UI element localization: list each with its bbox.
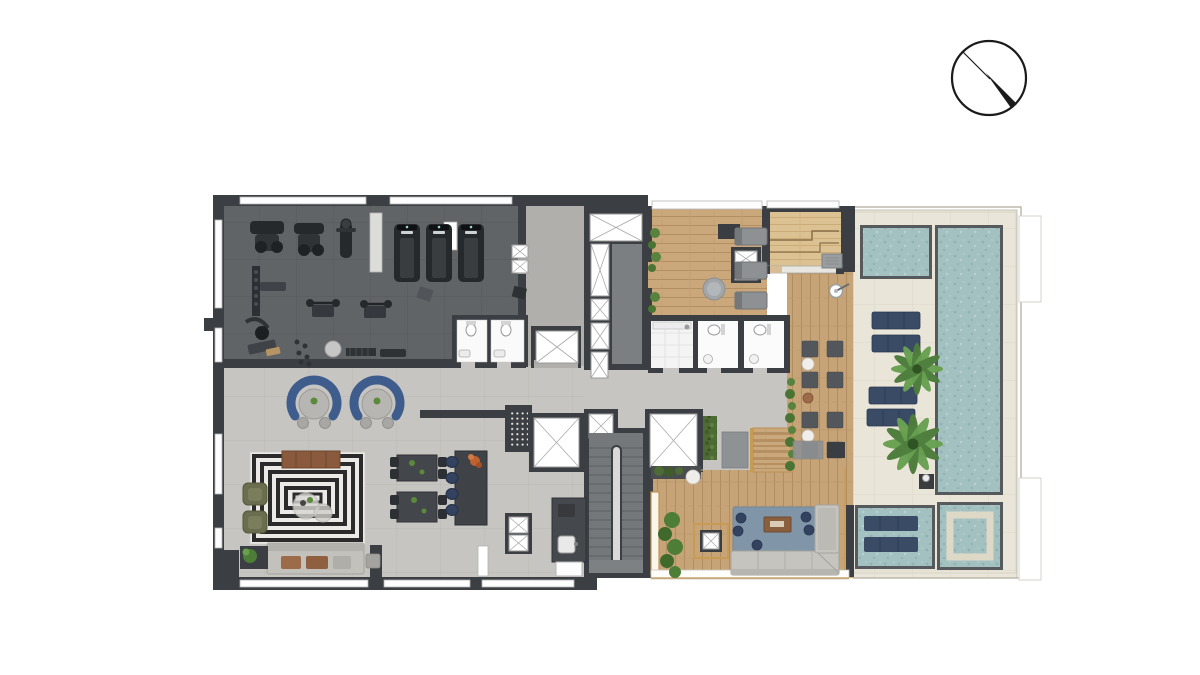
shaft-gray xyxy=(612,244,642,364)
deck-parapet-north xyxy=(652,201,762,209)
treadmill-2-headrest xyxy=(433,231,445,234)
gray-mat xyxy=(722,432,748,468)
round-table-brown xyxy=(803,393,813,403)
rack-knob-3 xyxy=(254,286,258,290)
wall-corridor-south xyxy=(420,410,505,418)
pool-ladder-rail xyxy=(923,475,930,482)
floor-plan-canvas xyxy=(0,0,1200,675)
side-table xyxy=(366,554,380,568)
pouf-2 xyxy=(733,526,743,536)
tank-gym-b xyxy=(501,321,511,325)
dumbbell-6 xyxy=(307,362,312,367)
window-left-2 xyxy=(215,328,222,362)
coffee-table-deco xyxy=(300,500,306,506)
deck-plant-5 xyxy=(650,292,660,302)
rack-knob-5 xyxy=(254,302,258,306)
deck-cushion-2 xyxy=(827,341,843,357)
bar-stool-2 xyxy=(446,473,458,484)
deck-lounger-3-pillow xyxy=(735,292,742,309)
shaft-left xyxy=(591,244,609,296)
treadmill-1-light xyxy=(406,226,409,229)
dot-rack xyxy=(509,412,528,446)
kitchen-fridge xyxy=(556,562,582,576)
deck-cushion-5 xyxy=(802,412,818,428)
kitchen-faucet xyxy=(574,542,578,546)
bar-flowers-2 xyxy=(468,454,474,460)
plants-col-4 xyxy=(660,554,674,568)
elevator-top xyxy=(590,214,642,241)
wall-wetdeck xyxy=(846,505,854,577)
plant-strip-3 xyxy=(788,402,796,410)
outdoor-sofa-back xyxy=(731,569,839,575)
treadmill-1-headrest xyxy=(401,231,413,234)
dining-table-2 xyxy=(397,492,437,522)
floor-plan-svg xyxy=(0,0,1200,675)
plant-strip-1 xyxy=(787,378,795,386)
plants-col-2 xyxy=(658,527,672,541)
sun-lounger-1 xyxy=(872,312,920,329)
treadmill-2-belt xyxy=(432,238,446,278)
shelf-plant-hi xyxy=(243,549,250,556)
elevator-a xyxy=(534,418,579,467)
white-round-table xyxy=(686,470,700,484)
treadmill-3-belt xyxy=(464,238,478,278)
storage-box-2 xyxy=(509,535,528,551)
bar-stool-4 xyxy=(446,505,458,516)
towel-shelf-2 xyxy=(512,260,528,273)
sofa-cushion-2 xyxy=(306,556,328,569)
gym-bench-3 xyxy=(380,349,406,357)
dumbbell-5 xyxy=(299,360,304,365)
gray-mat-2 xyxy=(793,441,823,459)
armchair-1-cushion xyxy=(248,488,262,501)
lap-pool-water xyxy=(938,228,1000,492)
kids-pool-water xyxy=(863,228,929,276)
d1-chair-2 xyxy=(390,469,399,479)
window-left-4 xyxy=(215,528,222,548)
plate-2a xyxy=(360,300,368,308)
pouf-3 xyxy=(752,540,762,550)
coffee-table-plant xyxy=(307,497,313,503)
fire-table-x xyxy=(703,533,719,549)
core-box-3 xyxy=(591,352,608,378)
window-left-1 xyxy=(215,220,222,308)
plants-col-1 xyxy=(664,512,680,528)
dumbbell-1 xyxy=(295,340,300,345)
machine2-top xyxy=(294,223,324,234)
booth2-plant xyxy=(374,398,381,405)
tank-wc1 xyxy=(721,324,725,335)
deck-plant-1 xyxy=(650,228,660,238)
deck-plant-2 xyxy=(648,241,656,249)
spin-bike-wheel xyxy=(341,219,351,229)
d2-chair-3 xyxy=(438,495,447,505)
terrace-bumpout-bottom xyxy=(1019,478,1041,580)
machine1-top xyxy=(250,221,284,234)
machine1-seat-a xyxy=(255,241,267,253)
sofa-cushion-1 xyxy=(281,556,301,569)
gym-mirror-strip xyxy=(370,213,382,272)
machine2-seat-b xyxy=(312,244,324,256)
wet-lounger-2 xyxy=(864,537,918,552)
sink-wc2 xyxy=(750,355,759,364)
rack-knob-2 xyxy=(254,278,258,282)
booth1-plant xyxy=(311,398,318,405)
wall-corner-bl xyxy=(213,550,239,582)
kitchen-stove xyxy=(558,504,575,517)
sauna-window-north xyxy=(767,201,839,208)
sun-lounger-4 xyxy=(867,409,915,426)
towel-shelf-1 xyxy=(512,245,528,258)
climber-seat xyxy=(255,326,269,340)
deck-cushion-1 xyxy=(802,341,818,357)
booth1-stool-b xyxy=(320,418,331,429)
window-bottom-2 xyxy=(384,580,470,587)
booth2-stool-b xyxy=(383,418,394,429)
deck-plant-6 xyxy=(648,305,656,313)
wall-gym-south xyxy=(222,359,438,368)
treadmill-3-light xyxy=(470,226,473,229)
wood-step-rail-l xyxy=(750,428,753,472)
round-table-2 xyxy=(802,430,814,442)
deck-plant-4 xyxy=(648,264,656,272)
deck-lounger-1-pillow xyxy=(735,228,742,245)
deck-plant-3 xyxy=(651,252,661,262)
pouf-1 xyxy=(736,513,746,523)
booth1-stool-a xyxy=(298,418,309,429)
elevator-b xyxy=(650,414,697,467)
bar-flowers-3 xyxy=(476,462,482,468)
plant-strip-8 xyxy=(785,461,795,471)
wet-lounger-1 xyxy=(864,516,918,531)
plant-strip-2 xyxy=(785,389,795,399)
plant-strip-4 xyxy=(785,413,795,423)
planter-hedge-3 xyxy=(675,467,683,475)
barbell-bench-2 xyxy=(364,306,386,318)
wall-left-notch xyxy=(204,318,214,331)
plate-2b xyxy=(384,300,392,308)
bar-stool-3 xyxy=(446,489,458,500)
outdoor-shower-head xyxy=(834,289,838,293)
treadmill-3-headrest xyxy=(465,231,477,234)
tank-wc2 xyxy=(767,324,771,335)
hedge-elevator xyxy=(703,416,717,460)
d2-green-2 xyxy=(422,509,427,514)
sink-wc1 xyxy=(704,355,713,364)
deck-cushion-4 xyxy=(827,372,843,388)
bar-stool-1 xyxy=(446,457,458,468)
rack-knob-1 xyxy=(254,270,258,274)
core-box-1 xyxy=(591,299,609,320)
window-top-2 xyxy=(390,197,512,204)
shower-drain xyxy=(685,325,690,330)
sofa-cushion-3 xyxy=(333,556,351,569)
window-left-3 xyxy=(215,434,222,494)
d2-green-1 xyxy=(411,497,417,503)
treadmill-2-light xyxy=(438,226,441,229)
deck-lounger-2-pillow xyxy=(735,262,742,279)
plate-1a xyxy=(306,299,314,307)
toilet-wc1 xyxy=(708,325,720,335)
spin-bike-handle xyxy=(336,228,356,232)
d1-green-2 xyxy=(420,470,425,475)
barbell-bench-1 xyxy=(312,305,334,317)
plant-strip-5 xyxy=(788,426,796,434)
deck-pouf-inner xyxy=(707,282,721,296)
rack-knob-4 xyxy=(254,294,258,298)
deck-dark-table-2 xyxy=(827,442,845,458)
sink-gym-a xyxy=(459,350,470,357)
deck-cushion-3 xyxy=(802,372,818,388)
wall-sauna-right xyxy=(841,206,855,272)
machine2-seat-a xyxy=(298,244,310,256)
plants-col-3 xyxy=(667,539,683,555)
stair-landing xyxy=(589,560,643,573)
core-box-2 xyxy=(591,323,609,349)
window-bottom-1 xyxy=(240,580,368,587)
lobby-elevator xyxy=(536,331,578,363)
deck-cushion-6 xyxy=(827,412,843,428)
pouf-4 xyxy=(801,512,811,522)
door-pillar xyxy=(478,546,488,576)
tank-gym-a xyxy=(466,321,476,325)
window-bottom-3 xyxy=(482,580,574,587)
stair-rail xyxy=(612,446,621,564)
deck-frame-left xyxy=(651,492,659,574)
treadmill-1-belt xyxy=(400,238,414,278)
plate-1b xyxy=(332,299,340,307)
coffee-table-tray xyxy=(770,521,784,527)
planter-hedge-1 xyxy=(654,466,664,476)
pouf-5 xyxy=(804,525,814,535)
door-sauna xyxy=(770,266,782,273)
sofa-back xyxy=(267,543,364,551)
planter-hedge-2 xyxy=(664,467,674,477)
dumbbell-4 xyxy=(305,355,310,360)
sun-lounger-2 xyxy=(872,335,920,352)
terrace-bumpout-top xyxy=(1019,216,1041,302)
round-table-1 xyxy=(802,358,814,370)
storage-box-1 xyxy=(509,517,528,533)
d2-chair-2 xyxy=(390,509,399,519)
flat-bench xyxy=(260,282,286,291)
dining-table-1 xyxy=(397,455,437,481)
sink-gym-b xyxy=(494,350,505,357)
window-top-1 xyxy=(240,197,366,204)
armchair-2-cushion xyxy=(248,516,262,529)
d2-chair-1 xyxy=(390,495,399,505)
dumbbell-2 xyxy=(303,344,308,349)
toilet-gym-a xyxy=(466,324,476,336)
toilet-gym-b xyxy=(501,324,511,336)
chaise-pad xyxy=(818,508,836,550)
plants-col-5 xyxy=(669,566,681,578)
toilet-wc2 xyxy=(754,325,766,335)
kitchen-sink xyxy=(558,536,575,553)
d1-chair-1 xyxy=(390,457,399,467)
d1-green-1 xyxy=(409,460,415,466)
dumbbell-3 xyxy=(297,351,302,356)
sun-lounger-3 xyxy=(869,387,917,404)
coffee-table-2 xyxy=(314,504,332,522)
booth2-stool-a xyxy=(361,418,372,429)
machine1-seat-b xyxy=(271,241,283,253)
exercise-ball xyxy=(325,341,341,357)
